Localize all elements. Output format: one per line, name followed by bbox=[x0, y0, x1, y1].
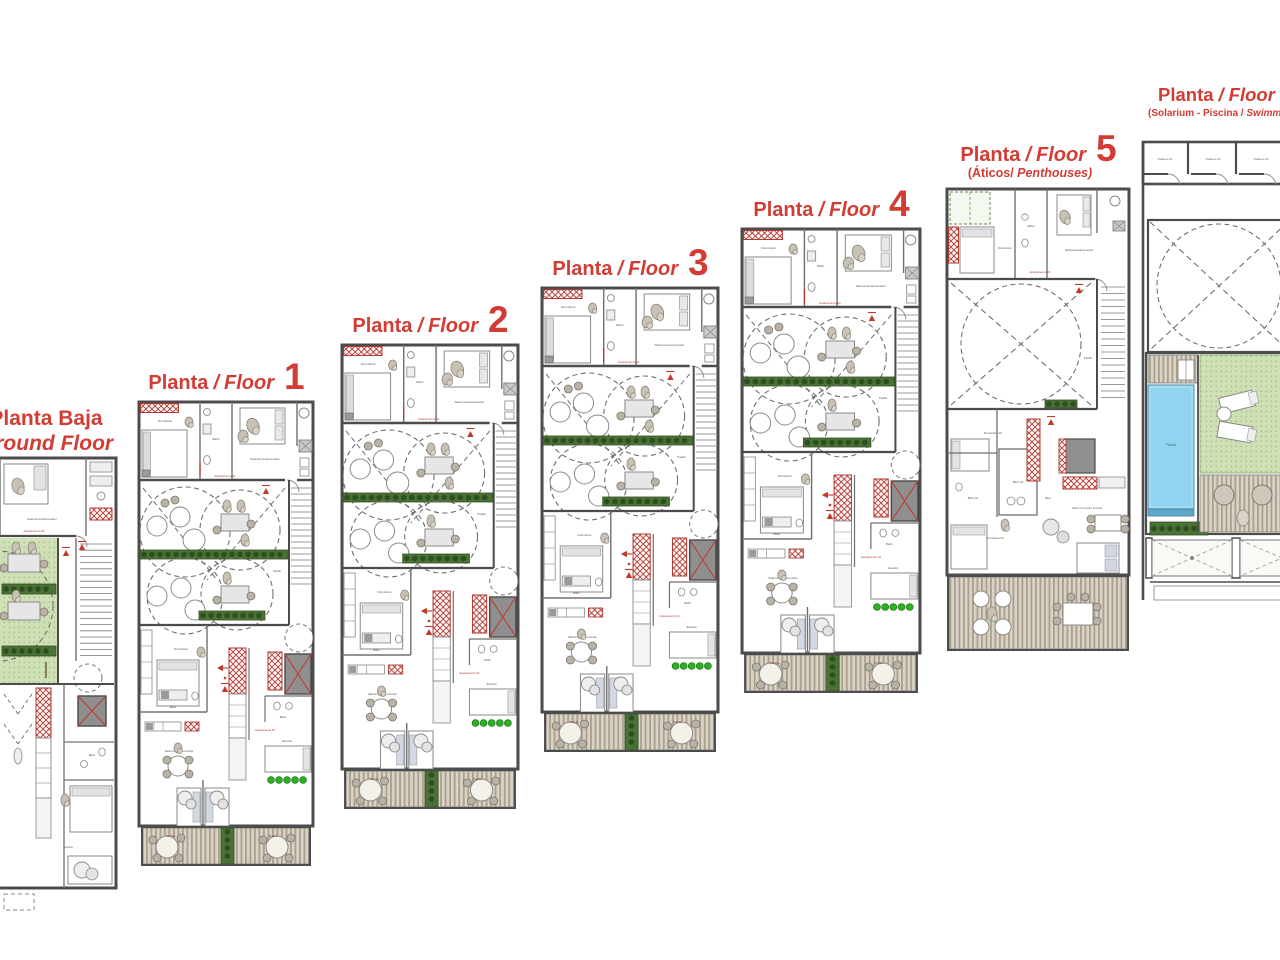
svg-text:Porche: Porche bbox=[875, 661, 884, 665]
title-planta: Planta bbox=[148, 372, 208, 395]
svg-text:Trastero 19: Trastero 19 bbox=[1254, 157, 1269, 161]
svg-text:Baño: Baño bbox=[373, 648, 380, 652]
svg-text:Baño: Baño bbox=[684, 601, 691, 605]
svg-text:Apartamento 01: Apartamento 01 bbox=[819, 301, 841, 305]
svg-text:Porche: Porche bbox=[370, 777, 379, 781]
svg-text:Salón/cocina/comedor: Salón/cocina/comedor bbox=[655, 343, 685, 347]
title-sep: / bbox=[818, 199, 824, 222]
svg-text:Estudio: Estudio bbox=[282, 739, 292, 743]
title-floor: Floor bbox=[224, 372, 274, 395]
floor-plan-drawing-f6: Trastero 21Trastero 20Trastero 19Piscina bbox=[1140, 140, 1280, 622]
floor-title-2: Planta / Floor 2 bbox=[340, 299, 520, 341]
svg-text:Pasillo: Pasillo bbox=[273, 569, 282, 573]
title-sep: / bbox=[1025, 144, 1031, 167]
svg-text:Baño: Baño bbox=[773, 532, 780, 536]
svg-text:Salón/cocina/comedor: Salón/cocina/comedor bbox=[250, 457, 280, 461]
floor-title-line2: Ground Floor bbox=[0, 431, 132, 456]
svg-text:Porche: Porche bbox=[473, 777, 482, 781]
floor-plan-4: DormitorioBañoSalón/cocina/comedorAparta… bbox=[740, 227, 922, 701]
floor-plan-solarium: Trastero 21Trastero 20Trastero 19Piscina bbox=[1140, 140, 1280, 622]
floor-title-4: Planta / Floor 4 bbox=[740, 183, 922, 225]
svg-text:Salón/cocina/comedor: Salón/cocina/comedor bbox=[455, 400, 485, 404]
subtitle-italic: Penthouses) bbox=[1014, 166, 1093, 180]
floor-subtitle-5: (Áticos/ Penthouses) bbox=[945, 166, 1115, 180]
svg-text:Apartamento 02: Apartamento 02 bbox=[255, 728, 275, 732]
title-sep: / bbox=[1219, 84, 1224, 106]
svg-text:Dormitorio: Dormitorio bbox=[378, 590, 392, 594]
svg-text:Dormitorio 02: Dormitorio 02 bbox=[984, 431, 1002, 435]
title-sep: / bbox=[617, 258, 623, 281]
svg-text:Apartamento 01: Apartamento 01 bbox=[418, 417, 440, 421]
floorplan-sheet: Planta Baja Ground Floor BañoSalón/cocin… bbox=[0, 0, 1280, 960]
svg-text:Pasillo: Pasillo bbox=[879, 396, 888, 400]
floor-plan-5: DormitorioBañoSalón/cocina/comedorAparta… bbox=[945, 187, 1131, 660]
svg-text:Pasillo: Pasillo bbox=[1084, 356, 1093, 360]
floor-title-3: Planta / Floor 3 bbox=[540, 242, 720, 284]
svg-text:Dormitorio 01: Dormitorio 01 bbox=[986, 536, 1004, 540]
title-number: 5 bbox=[1096, 128, 1116, 170]
svg-text:Apartamento 01: Apartamento 01 bbox=[1029, 270, 1051, 274]
floor-title-ground: Planta Baja Ground Floor bbox=[0, 406, 132, 456]
svg-text:Baño: Baño bbox=[280, 715, 287, 719]
title-floor: Floor bbox=[628, 258, 678, 281]
svg-text:Salón/cocina/comedor: Salón/cocina/comedor bbox=[856, 284, 886, 288]
svg-text:Pasillo: Pasillo bbox=[477, 512, 486, 516]
svg-text:Cocina: Cocina bbox=[63, 845, 73, 849]
svg-text:Dormitorio: Dormitorio bbox=[174, 647, 188, 651]
floor-plan-ground: BañoSalón/cocina/comedorApartamento 01Ba… bbox=[0, 456, 118, 914]
svg-text:Baño: Baño bbox=[817, 264, 824, 268]
svg-text:Baño 01: Baño 01 bbox=[968, 496, 979, 500]
floor-plan-drawing-f1: DormitorioBañoSalón/cocina/comedorAparta… bbox=[137, 400, 315, 874]
floor-plan-drawing-f4: DormitorioBañoSalón/cocina/comedorAparta… bbox=[740, 227, 922, 701]
svg-text:Apartamento 02: Apartamento 02 bbox=[659, 614, 679, 618]
svg-text:Baño: Baño bbox=[1027, 224, 1034, 228]
title-number: 4 bbox=[889, 183, 909, 225]
title-floor: Floor bbox=[1036, 144, 1086, 167]
title-planta: Planta bbox=[753, 199, 813, 222]
svg-text:Porche: Porche bbox=[570, 720, 579, 724]
title-planta: Planta bbox=[1158, 84, 1214, 106]
svg-text:Baño: Baño bbox=[484, 658, 491, 662]
svg-text:Porche: Porche bbox=[269, 834, 278, 838]
title-planta: Planta bbox=[960, 144, 1020, 167]
svg-text:Baño 02: Baño 02 bbox=[1013, 480, 1024, 484]
svg-text:Porche: Porche bbox=[770, 661, 779, 665]
svg-text:Paso: Paso bbox=[1045, 496, 1052, 500]
floor-plan-drawing-ground: BañoSalón/cocina/comedorApartamento 01Ba… bbox=[0, 456, 118, 914]
svg-text:Trastero 20: Trastero 20 bbox=[1206, 157, 1221, 161]
svg-text:Salón/cocina/comedor: Salón/cocina/comedor bbox=[27, 517, 57, 521]
subtitle-plain: (Áticos/ bbox=[968, 166, 1014, 180]
svg-text:Baño: Baño bbox=[616, 323, 623, 327]
subtitle-italic: Swimming Pool) bbox=[1244, 108, 1280, 119]
title-floor: Floor bbox=[1229, 84, 1275, 106]
svg-text:Dormitorio: Dormitorio bbox=[158, 419, 173, 423]
svg-text:Porche: Porche bbox=[673, 720, 682, 724]
floor-title-5: Planta / Floor 5 bbox=[945, 128, 1131, 168]
floor-plan-3: DormitorioBañoSalón/cocina/comedorAparta… bbox=[540, 286, 720, 760]
title-number: 3 bbox=[688, 242, 708, 284]
svg-text:Porche: Porche bbox=[167, 834, 176, 838]
svg-text:Estudio: Estudio bbox=[888, 566, 898, 570]
floor-plan-drawing-f5: DormitorioBañoSalón/cocina/comedorAparta… bbox=[945, 187, 1131, 660]
floor-plan-drawing-f2: DormitorioBañoSalón/cocina/comedorAparta… bbox=[340, 343, 520, 817]
title-planta: Planta bbox=[352, 315, 412, 338]
svg-text:Dormitorio: Dormitorio bbox=[361, 362, 376, 366]
subtitle-plain: (Solarium - Piscina / bbox=[1148, 108, 1244, 119]
title-number: 1 bbox=[284, 356, 304, 398]
title-floor: Floor bbox=[428, 315, 478, 338]
floor-title-line1: Planta Baja bbox=[0, 406, 132, 431]
floor-title-solarium: Planta / Floor bbox=[1158, 84, 1280, 106]
title-number: 2 bbox=[488, 299, 508, 341]
svg-text:Apartamento 02: Apartamento 02 bbox=[861, 555, 882, 559]
svg-text:Dormitorio: Dormitorio bbox=[561, 305, 576, 309]
svg-text:Apartamento 01: Apartamento 01 bbox=[618, 360, 640, 364]
floor-plan-2: DormitorioBañoSalón/cocina/comedorAparta… bbox=[340, 343, 520, 817]
svg-text:Dormitorio: Dormitorio bbox=[778, 474, 792, 478]
svg-text:Estudio: Estudio bbox=[687, 625, 697, 629]
svg-text:Baño: Baño bbox=[573, 591, 580, 595]
svg-text:Apartamento 02: Apartamento 02 bbox=[459, 671, 479, 675]
floor-subtitle-solarium: (Solarium - Piscina / Swimming Pool) bbox=[1148, 108, 1280, 119]
svg-text:Dormitorio: Dormitorio bbox=[998, 246, 1012, 250]
title-sep: / bbox=[417, 315, 423, 338]
svg-text:Baño: Baño bbox=[89, 753, 96, 757]
svg-text:Dormitorio: Dormitorio bbox=[578, 533, 592, 537]
svg-text:Pasillo: Pasillo bbox=[677, 455, 686, 459]
svg-text:Trastero 21: Trastero 21 bbox=[1158, 157, 1173, 161]
title-floor: Floor bbox=[829, 199, 879, 222]
svg-text:Apartamento 01: Apartamento 01 bbox=[214, 474, 236, 478]
svg-text:Salón/cocina/comedor: Salón/cocina/comedor bbox=[1065, 248, 1094, 252]
floor-plan-1: DormitorioBañoSalón/cocina/comedorAparta… bbox=[137, 400, 315, 874]
svg-text:Salón Comedor Cocina: Salón Comedor Cocina bbox=[1072, 506, 1102, 510]
svg-text:Estudio: Estudio bbox=[487, 682, 497, 686]
svg-text:Baño: Baño bbox=[416, 380, 423, 384]
svg-text:Baño: Baño bbox=[212, 437, 219, 441]
svg-text:Baño: Baño bbox=[886, 542, 893, 546]
title-planta: Planta bbox=[552, 258, 612, 281]
floor-plan-drawing-f3: DormitorioBañoSalón/cocina/comedorAparta… bbox=[540, 286, 720, 760]
svg-text:Baño: Baño bbox=[170, 705, 177, 709]
floor-title-1: Planta / Floor 1 bbox=[137, 356, 315, 398]
title-sep: / bbox=[213, 372, 219, 395]
svg-text:Dormitorio: Dormitorio bbox=[761, 246, 776, 250]
svg-text:Piscina: Piscina bbox=[1166, 443, 1177, 447]
svg-text:Apartamento 01: Apartamento 01 bbox=[23, 529, 45, 533]
